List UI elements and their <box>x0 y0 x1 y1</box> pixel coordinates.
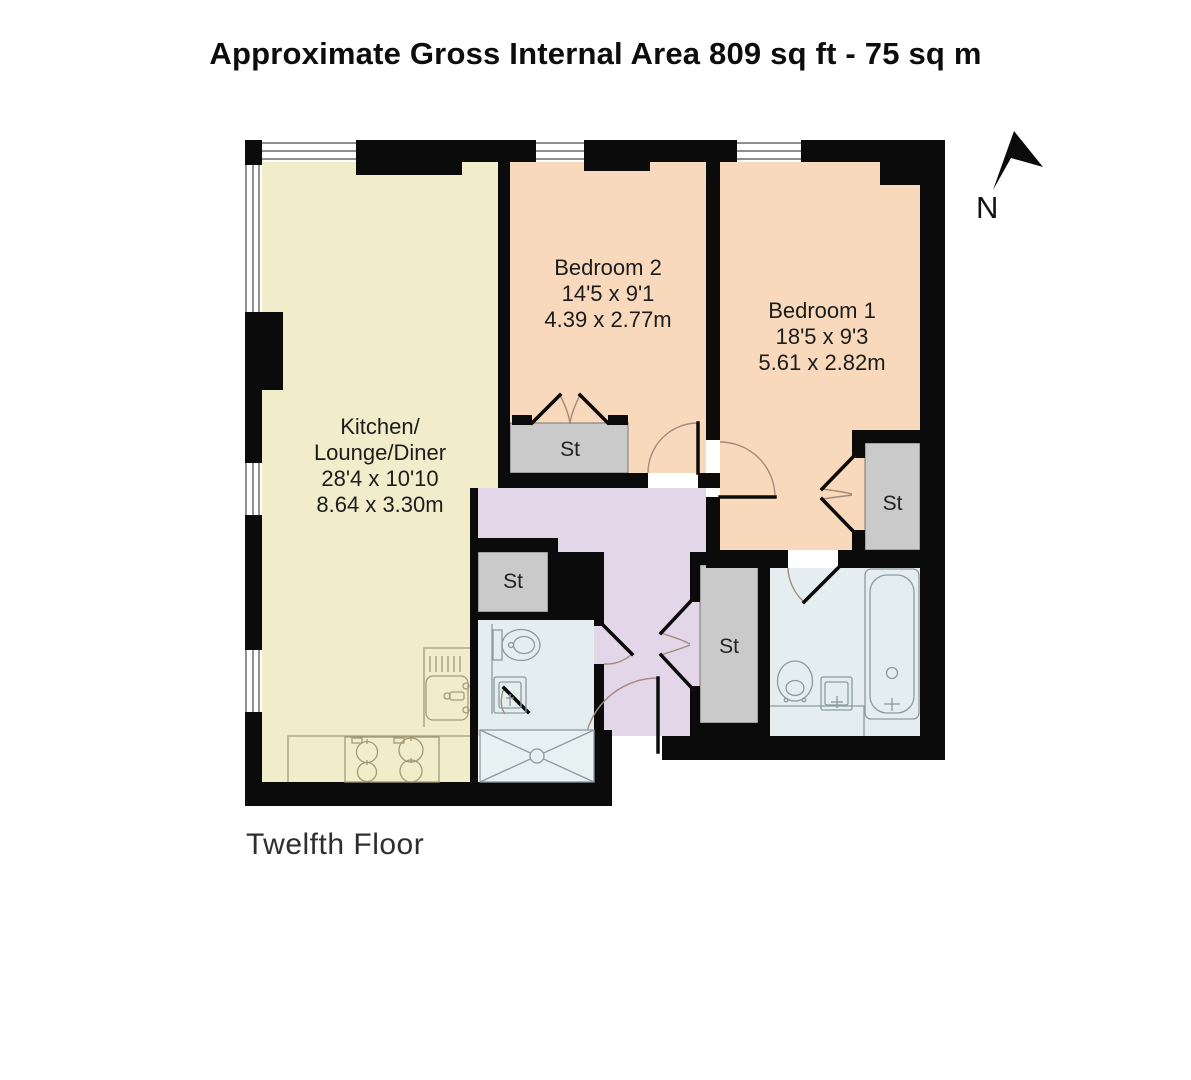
floor-label: Twelfth Floor <box>246 828 424 862</box>
closet-bedroom2 <box>510 423 628 473</box>
kitchen-room <box>262 162 498 782</box>
floor-plan-drawing: N <box>0 0 1191 1080</box>
closet-kitchen <box>478 552 548 612</box>
north-label: N <box>976 190 998 225</box>
window-icon <box>243 463 262 515</box>
sink-icon <box>494 677 526 713</box>
window-icon <box>536 140 584 162</box>
window-icon <box>243 165 262 312</box>
shower-tray-icon <box>480 730 594 782</box>
floorplan-page: Approximate Gross Internal Area 809 sq f… <box>0 0 1191 1080</box>
closet-bedroom1 <box>865 443 920 550</box>
closet-hall <box>700 565 758 723</box>
window-icon <box>243 650 262 712</box>
footer: PINK PLAN Floor plan produced in accorda… <box>0 940 1191 1080</box>
north-arrow-icon <box>993 131 1043 190</box>
bathroom <box>770 568 920 736</box>
window-icon <box>737 140 801 162</box>
window-icon <box>262 140 356 162</box>
north-arrow: N <box>976 131 1043 225</box>
